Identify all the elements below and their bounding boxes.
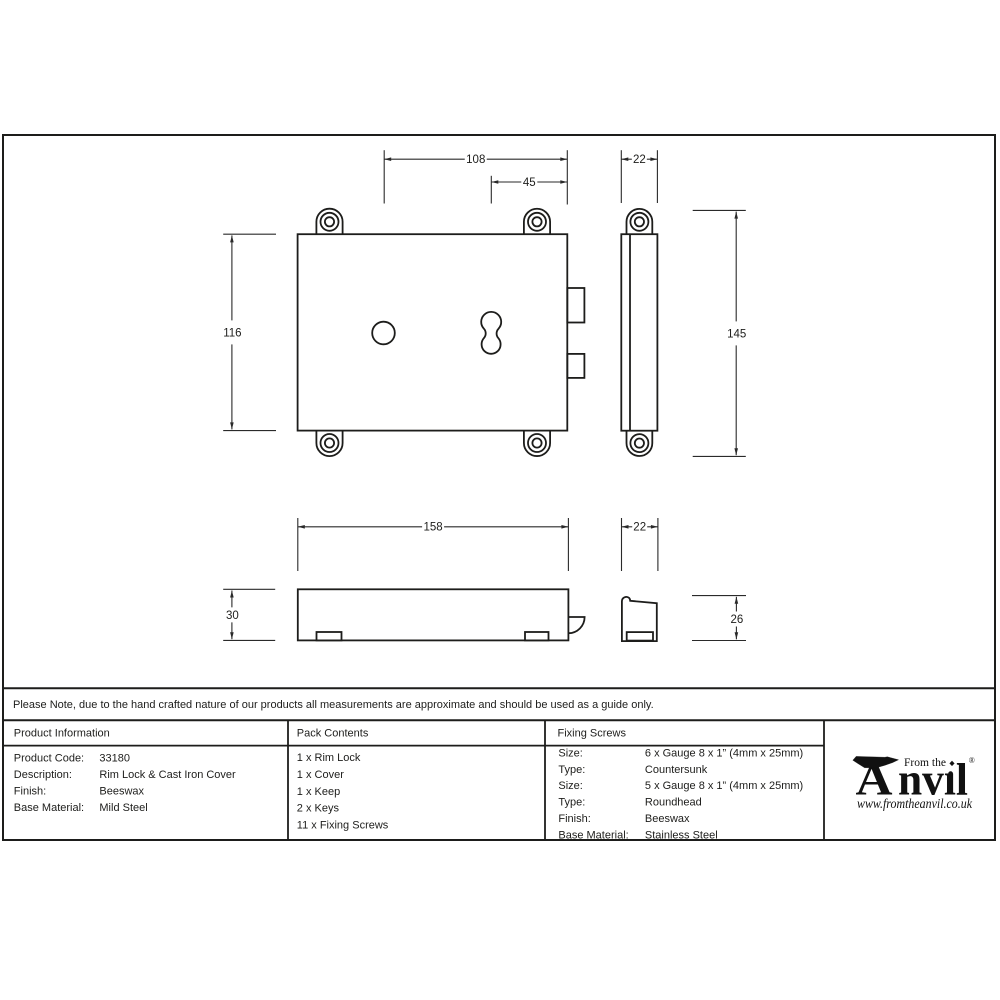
svg-text:6 x Gauge 8 x 1” (4mm x 25mm): 6 x Gauge 8 x 1” (4mm x 25mm)	[645, 747, 803, 759]
svg-text:Mild Steel: Mild Steel	[99, 802, 147, 814]
svg-text:30: 30	[226, 610, 239, 622]
svg-text:Size:: Size:	[558, 747, 582, 759]
svg-text:26: 26	[731, 614, 744, 626]
svg-text:Size:: Size:	[558, 780, 582, 792]
svg-text:Stainless Steel: Stainless Steel	[645, 829, 718, 841]
svg-text:5 x Gauge 8 x 1” (4mm x 25mm): 5 x Gauge 8 x 1” (4mm x 25mm)	[645, 780, 803, 792]
svg-text:Type:: Type:	[558, 797, 585, 809]
svg-text:Description:: Description:	[14, 769, 72, 781]
svg-text:www.fromtheanvil.co.uk: www.fromtheanvil.co.uk	[857, 796, 973, 811]
svg-text:Please Note, due to the hand c: Please Note, due to the hand crafted nat…	[13, 699, 654, 711]
svg-text:Countersunk: Countersunk	[645, 764, 708, 776]
svg-text:145: 145	[727, 328, 746, 340]
svg-text:1 x Cover: 1 x Cover	[297, 769, 344, 781]
svg-text:Fixing Screws: Fixing Screws	[558, 728, 627, 740]
svg-text:108: 108	[466, 154, 485, 166]
svg-text:22: 22	[633, 154, 646, 166]
svg-text:Pack Contents: Pack Contents	[297, 728, 369, 740]
svg-text:Base Material:: Base Material:	[558, 829, 628, 841]
svg-text:2 x Keys: 2 x Keys	[297, 803, 340, 815]
svg-text:1 x Rim Lock: 1 x Rim Lock	[297, 752, 361, 764]
svg-text:158: 158	[424, 522, 443, 534]
svg-text:Rim Lock & Cast Iron Cover: Rim Lock & Cast Iron Cover	[99, 769, 236, 781]
svg-text:Beeswax: Beeswax	[99, 785, 144, 797]
svg-text:Base Material:: Base Material:	[14, 802, 84, 814]
svg-text:45: 45	[523, 177, 536, 189]
svg-text:11 x Fixing Screws: 11 x Fixing Screws	[297, 819, 389, 831]
svg-text:Beeswax: Beeswax	[645, 813, 690, 825]
svg-text:Finish:: Finish:	[558, 813, 590, 825]
svg-text:®: ®	[969, 756, 975, 765]
svg-text:Product Information: Product Information	[14, 728, 110, 740]
svg-text:1 x Keep: 1 x Keep	[297, 786, 340, 798]
svg-text:22: 22	[633, 522, 646, 534]
svg-text:33180: 33180	[99, 753, 130, 765]
svg-text:From the: From the	[904, 755, 946, 769]
svg-text:Type:: Type:	[558, 764, 585, 776]
svg-text:Product Code:: Product Code:	[14, 753, 84, 765]
svg-text:116: 116	[223, 327, 241, 339]
svg-text:Roundhead: Roundhead	[645, 797, 702, 809]
svg-text:Finish:: Finish:	[14, 785, 46, 797]
